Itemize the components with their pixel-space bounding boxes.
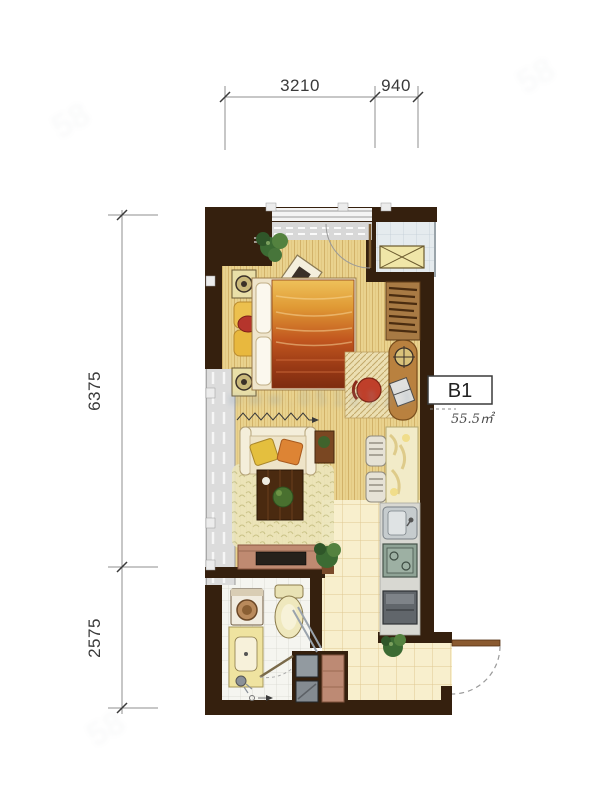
watermark-corner-left: 58	[45, 95, 97, 147]
sofa-cushion-orange	[277, 439, 304, 466]
air-conditioner-unit	[380, 246, 424, 268]
watermark-corner-right: 58	[510, 50, 562, 102]
dining-chair-1	[366, 436, 386, 466]
dining-chair-2	[366, 472, 386, 502]
entry-wall-stub	[441, 686, 452, 715]
unit-code: B1	[448, 380, 472, 402]
bed	[252, 278, 356, 390]
pillow	[256, 337, 271, 385]
plant	[273, 487, 293, 507]
side-table	[315, 431, 334, 463]
tv-cabinet	[238, 545, 322, 569]
sofa	[240, 427, 316, 475]
pillow	[256, 283, 271, 333]
vanity-sink	[229, 627, 263, 687]
dimension-left-lower: 2575	[85, 618, 104, 658]
kitchen-sink	[383, 507, 417, 539]
window-band	[272, 208, 372, 240]
floor-plan-page: 3210 940 6375 2575	[0, 0, 600, 800]
wardrobe-hangers	[386, 282, 420, 340]
unit-label: B1 55.5㎡	[428, 376, 496, 427]
gas-stove	[383, 544, 417, 577]
kitchen-block	[292, 651, 348, 706]
floor-plan-canvas: 3210 940 6375 2575	[0, 0, 600, 800]
entry-door	[452, 640, 500, 694]
dimension-top-main: 3210	[280, 76, 320, 95]
unit-area: 55.5㎡	[451, 411, 496, 427]
appliance	[383, 591, 417, 624]
dimension-left-upper: 6375	[85, 371, 104, 411]
coffee-table	[257, 470, 303, 520]
dimension-lines-left	[108, 210, 158, 714]
dimension-lines-top	[220, 86, 423, 150]
dining-table	[386, 427, 418, 505]
watermark-center: www.0512123	[227, 389, 414, 410]
toilet	[275, 585, 303, 638]
watermark-corner-bottom: 58	[80, 703, 132, 755]
washing-machine	[231, 589, 263, 625]
dimension-top-right: 940	[381, 76, 411, 95]
tv	[256, 552, 306, 565]
